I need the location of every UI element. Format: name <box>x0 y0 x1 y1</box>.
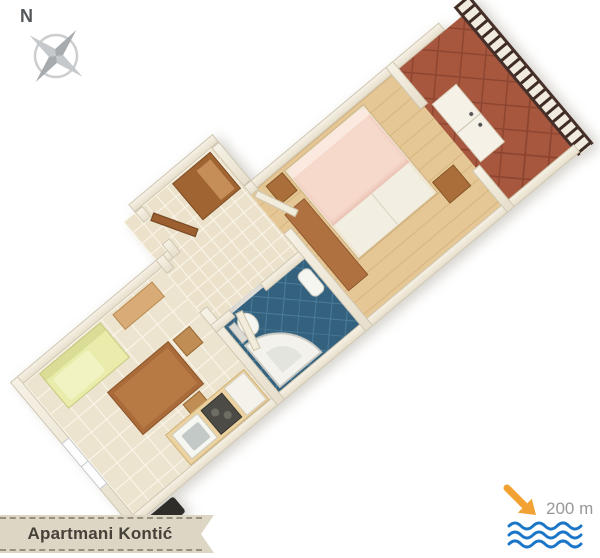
sink-basin <box>181 422 211 451</box>
compass-rose-icon: N <box>6 0 106 100</box>
mattress-seam <box>371 193 397 224</box>
distance-label: 200 m <box>546 499 593 519</box>
title-banner: Apartmani Kontić <box>0 515 214 553</box>
arrow-to-sea-icon <box>500 483 544 521</box>
window-mullion <box>81 461 88 467</box>
shower-tray <box>266 336 303 373</box>
compass-north-label: N <box>20 6 33 26</box>
burner <box>222 409 233 420</box>
floor-plan-image: N Apartmani Kontić 200 m <box>0 0 600 558</box>
sea-waves-icon <box>506 521 586 549</box>
apartment-name: Apartmani Kontić <box>0 515 200 553</box>
door-handle <box>477 122 483 128</box>
burner <box>210 407 221 418</box>
beach-distance-indicator: 200 m <box>500 483 600 555</box>
compass-rose: N <box>6 0 106 100</box>
door-handle <box>468 111 474 117</box>
